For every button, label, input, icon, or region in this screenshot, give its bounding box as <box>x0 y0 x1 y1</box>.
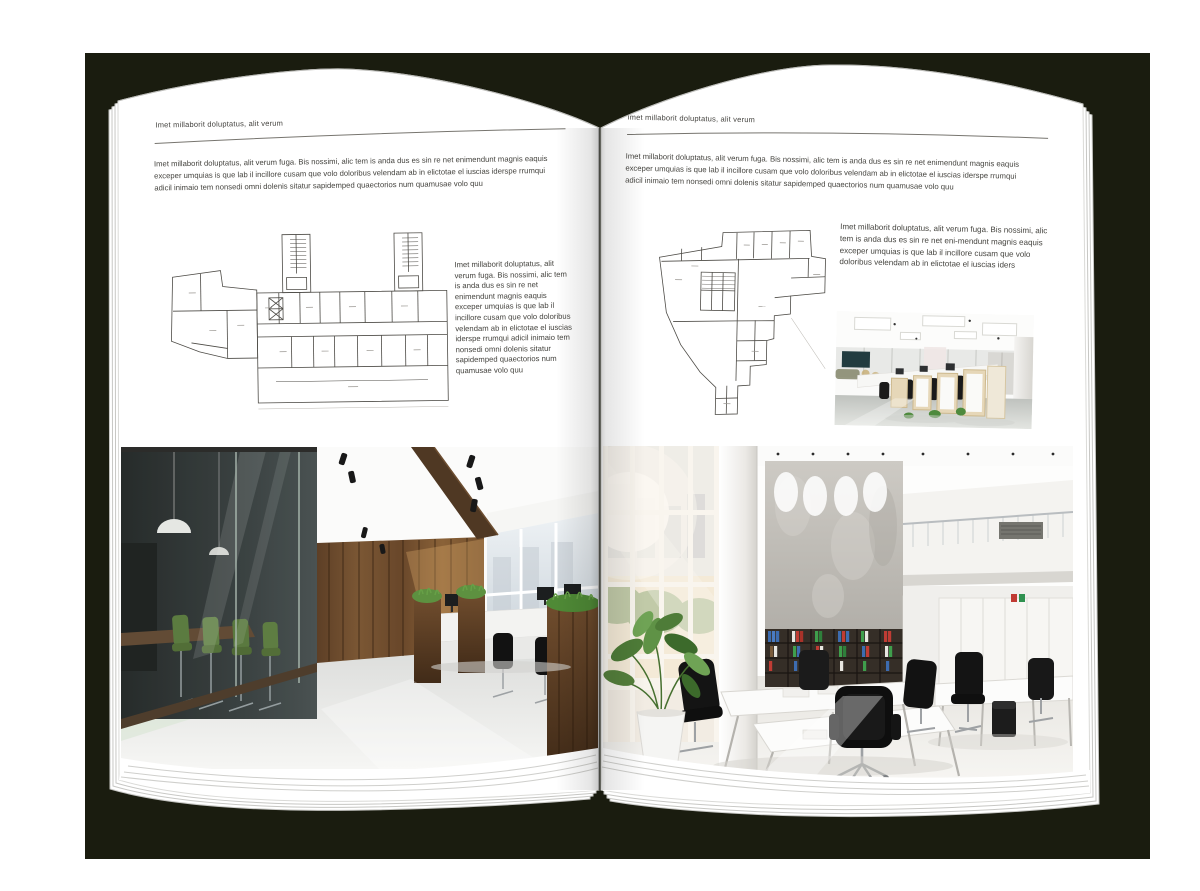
brochure-spread-mockup: Imet millaborit doluptatus, alit verum I… <box>0 0 1200 891</box>
page-curl-overlay <box>0 0 1200 891</box>
